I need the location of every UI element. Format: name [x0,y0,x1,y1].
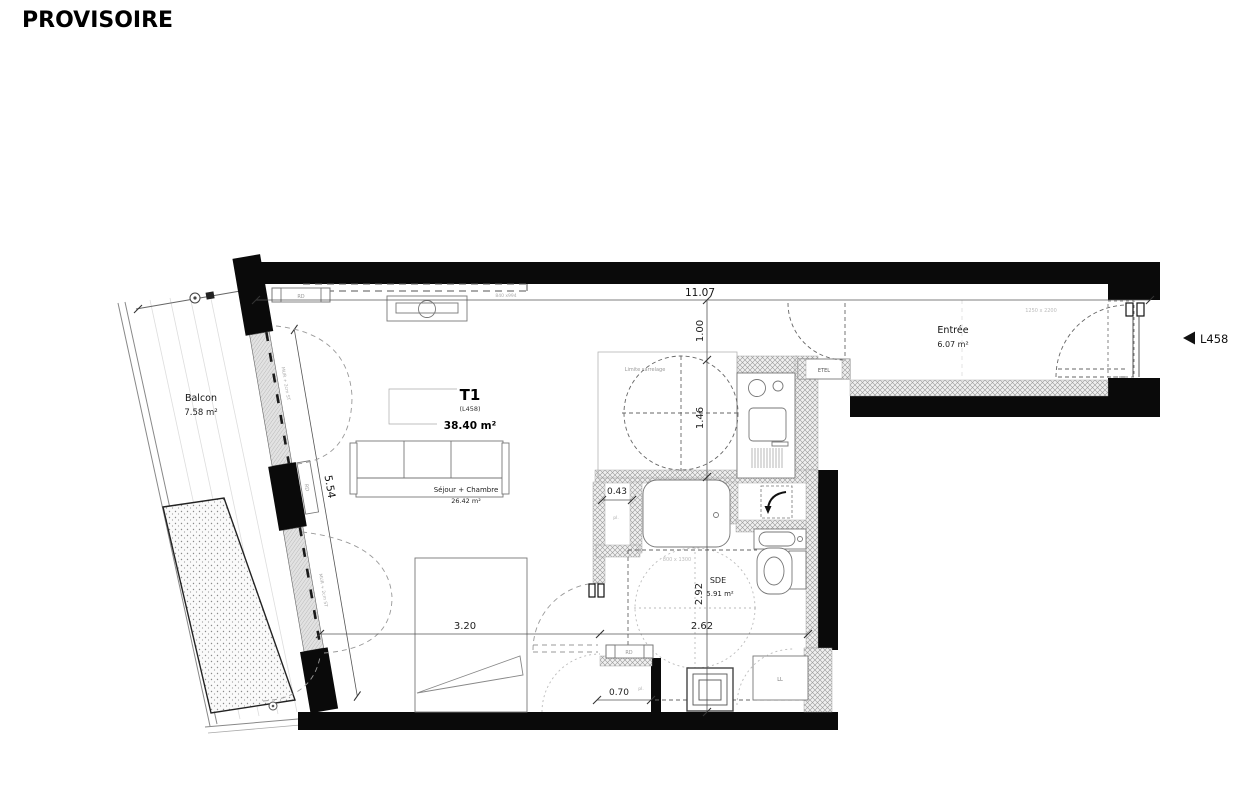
room-label-sde: SDE [710,576,726,585]
unit-area: 38.40 m² [444,420,497,432]
dim-1-46: 1.46 [695,407,706,429]
balcony-door-lower-leaf-a [302,532,392,597]
dim-2-62: 2.62 [691,621,713,632]
bed [415,558,527,712]
room-area-sde: 5.91 m² [706,590,734,598]
soffit-note: 840 x994 [495,293,516,299]
water-heater-niche [761,486,792,518]
kitchen-tile-zone [598,352,737,478]
unit-title-leader [389,389,457,424]
hall-door-swing [788,303,845,360]
closet-pl-label-1: pl. [613,515,619,521]
floor-plan-sheet: PROVISOIRE [0,0,1258,800]
dim-5-54: 5.54 [322,474,338,499]
tile-limit-note: Limite carrelage [625,367,666,373]
structural-column [687,668,733,711]
balcony-door-lower-leaf-b [324,597,392,653]
marker-label: L458 [1200,332,1228,346]
radiator-label-2: RD [625,650,632,656]
bedroom-door-swing [542,654,600,712]
dim-11-07: 11.07 [685,287,715,299]
washer-label: LL [777,677,783,683]
shower-tray [643,480,730,547]
room-area-balcon: 7.58 m² [184,408,217,418]
room-area-entree: 6.07 m² [937,340,968,349]
room-label-balcon: Balcon [185,393,217,404]
etel-label: ETEL [818,368,830,374]
marker-arrow-icon [1183,332,1195,345]
unit-marker: L458 [1183,332,1228,347]
balcony-door-upper-leaf-b [297,396,352,464]
unit-lot: (L458) [459,405,480,413]
rail-post [206,291,215,299]
dim-3-20: 3.20 [454,621,476,632]
dim-0-43: 0.43 [607,487,627,497]
entry-door-swing [1056,305,1128,377]
floor-plan-drawing: Balcon 7.58 m² RD MUR + 2cm ST MUR + 2cm… [0,0,1258,800]
wc-bowl [757,548,792,594]
room-label-sejour: Séjour + Chambre [434,486,499,494]
shower-size-note: 800 x 1300 [663,557,691,563]
dim-1-00: 1.00 [695,320,706,342]
dim-0-70: 0.70 [609,688,629,698]
room-area-sejour: 26.42 m² [451,497,481,505]
radiator-label: RD [303,484,310,492]
radiator-label-3: RD [297,294,304,300]
wall-note-2: MUR + 2cm ST [317,573,329,607]
niche-arrow [768,492,786,508]
unit-type: T1 [460,386,481,404]
dim-2-92: 2.92 [694,583,705,605]
wall-note-1: MUR + 2cm ST [280,367,292,401]
closet-pl-label-2: pl. [638,686,644,692]
window-size-note: 1250 x 2200 [1025,308,1057,314]
room-label-entree: Entrée [937,325,968,336]
